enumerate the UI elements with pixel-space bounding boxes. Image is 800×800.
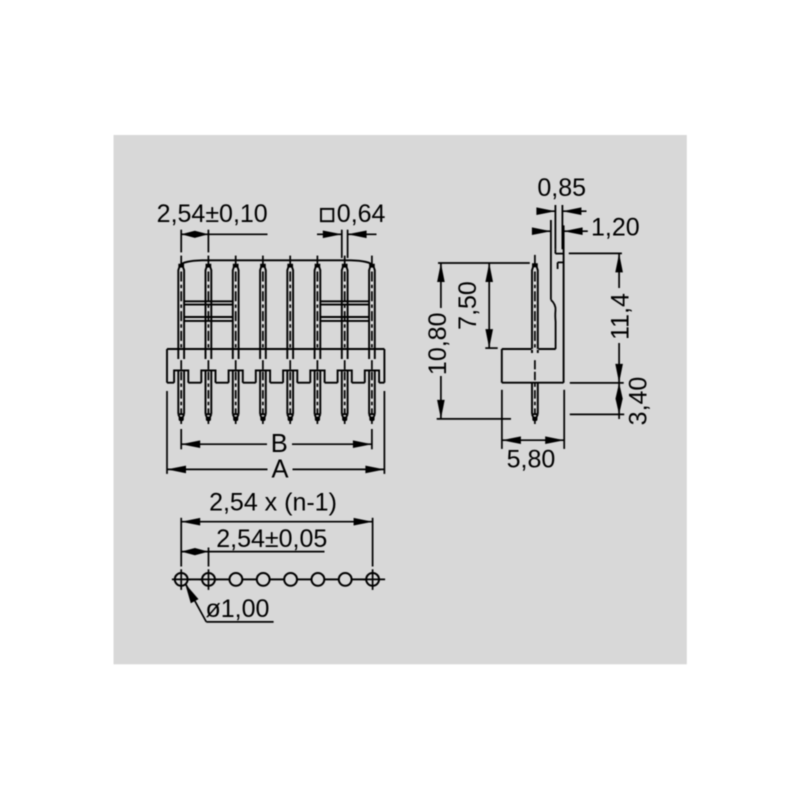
svg-text:5,80: 5,80	[507, 446, 556, 474]
svg-text:2,54±0,10: 2,54±0,10	[157, 200, 268, 228]
svg-text:2,54±0,05: 2,54±0,05	[216, 525, 327, 553]
svg-text:2,54 x (n-1): 2,54 x (n-1)	[209, 489, 337, 517]
svg-text:A: A	[271, 456, 288, 484]
svg-text:ø1,00: ø1,00	[206, 595, 270, 623]
svg-text:11,4: 11,4	[607, 293, 635, 340]
svg-text:10,80: 10,80	[424, 313, 452, 376]
svg-text:0,85: 0,85	[537, 174, 586, 202]
svg-text:3,40: 3,40	[625, 377, 653, 426]
svg-text:0,64: 0,64	[337, 200, 386, 228]
svg-text:B: B	[271, 430, 288, 458]
svg-text:1,20: 1,20	[591, 214, 640, 242]
svg-text:7,50: 7,50	[454, 281, 482, 330]
